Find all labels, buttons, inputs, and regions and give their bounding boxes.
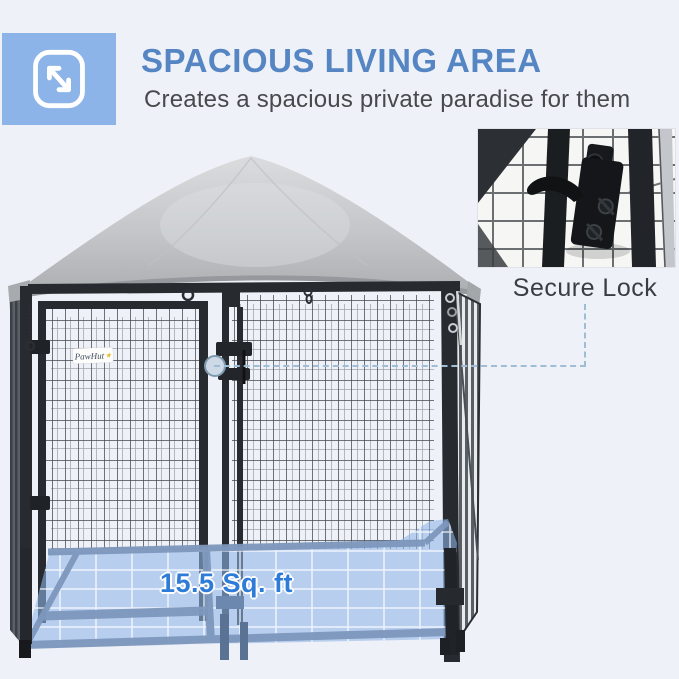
paw-icon: ★ — [105, 351, 112, 359]
brand-tag: PawHut★ — [73, 347, 113, 363]
secure-lock-label: Secure Lock — [500, 274, 670, 303]
left-side-panel — [10, 300, 20, 642]
lock-closeup-inset — [478, 129, 675, 267]
lock-closeup-art — [478, 129, 675, 267]
callout-dashed-line — [214, 304, 586, 367]
brand-name: PawHut — [74, 350, 104, 361]
marketing-image: SPACIOUS LIVING AREA Creates a spacious … — [0, 0, 679, 679]
floor-area-label: 15.5 Sq. ft — [160, 568, 293, 599]
